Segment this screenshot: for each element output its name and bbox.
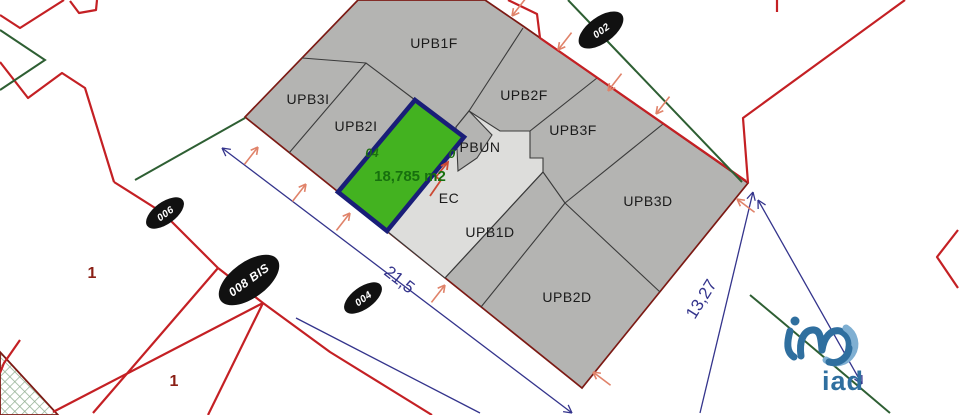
zone-marker-1a: 1 bbox=[88, 265, 97, 282]
parcel-label-upb3d: UPB3D bbox=[623, 193, 672, 209]
road-badge-002: 002 bbox=[572, 4, 629, 56]
dimension-label-13-27: 13,27 bbox=[682, 276, 721, 322]
parcel-label-upb1d: UPB1D bbox=[465, 224, 514, 240]
zone-marker-1b: 1 bbox=[170, 373, 179, 390]
parcel-label-upb2i: UPB2I bbox=[335, 118, 378, 134]
parcel-label-upb1f: UPB1F bbox=[410, 35, 458, 51]
logo-text: iad bbox=[822, 366, 864, 396]
selected-parcel-code-right: 0 bbox=[449, 147, 456, 161]
parcel-label-upb3i: UPB3I bbox=[287, 91, 330, 107]
road-badge-006: 006 bbox=[141, 191, 190, 235]
parcel-label-upb2d: UPB2D bbox=[542, 289, 591, 305]
iad-logo: iad bbox=[788, 317, 864, 397]
cadastral-map: 002 006 008 BIS 004 21,5 13,27 UPB1F UPB… bbox=[0, 0, 960, 415]
parcel-label-upb3f: UPB3F bbox=[549, 122, 597, 138]
selected-parcel-area: 18,785 m2 bbox=[374, 168, 446, 185]
road-badge-004: 004 bbox=[339, 276, 388, 320]
parcel-label-pbun: PBUN bbox=[460, 139, 501, 155]
hatched-area bbox=[0, 352, 58, 415]
logo-i-dot bbox=[791, 317, 800, 326]
map-canvas: 002 006 008 BIS 004 21,5 13,27 UPB1F UPB… bbox=[0, 0, 960, 415]
selected-parcel-code: 04 bbox=[365, 146, 379, 160]
parcel-label-ec: EC bbox=[439, 190, 459, 206]
road-badge-008bis: 008 BIS bbox=[210, 245, 288, 315]
parcel-label-upb2f: UPB2F bbox=[500, 87, 548, 103]
